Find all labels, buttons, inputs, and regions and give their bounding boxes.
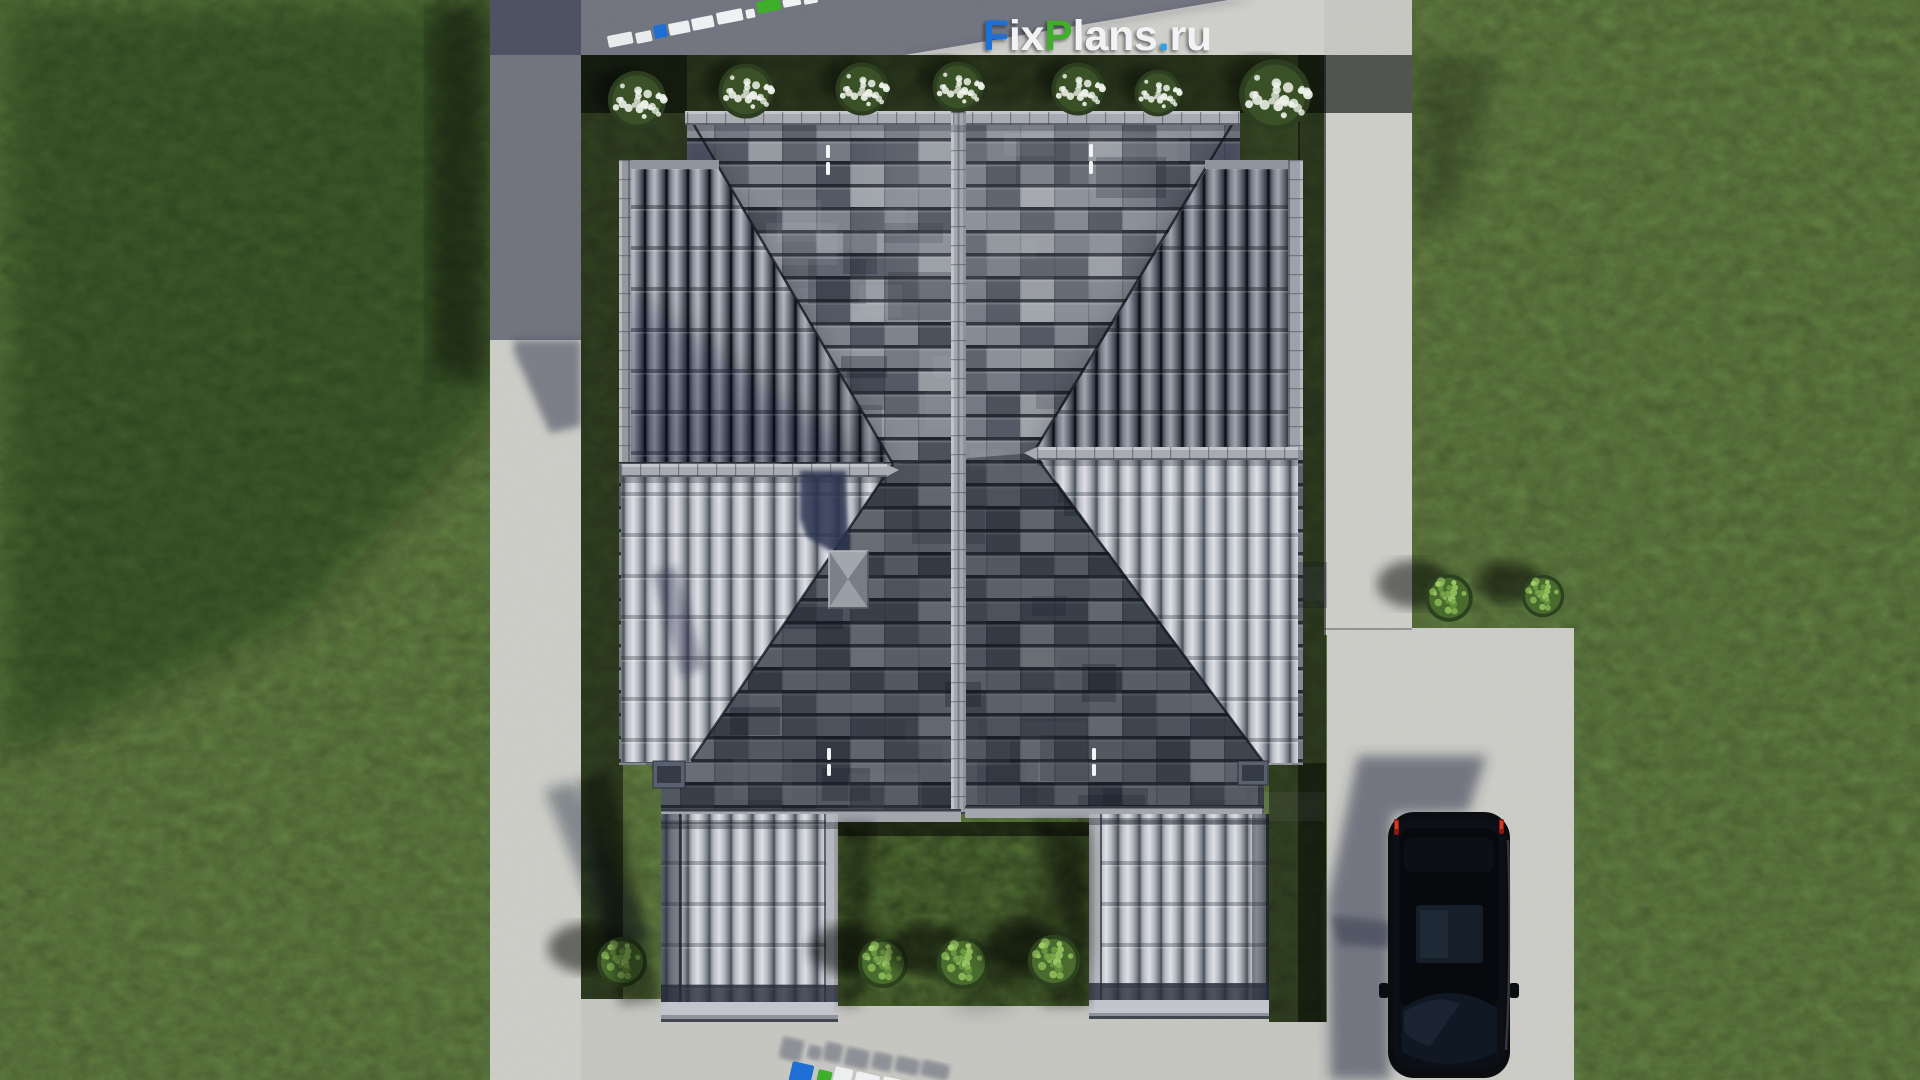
svg-text:FixPlans.ru: FixPlans.ru bbox=[983, 13, 1212, 60]
